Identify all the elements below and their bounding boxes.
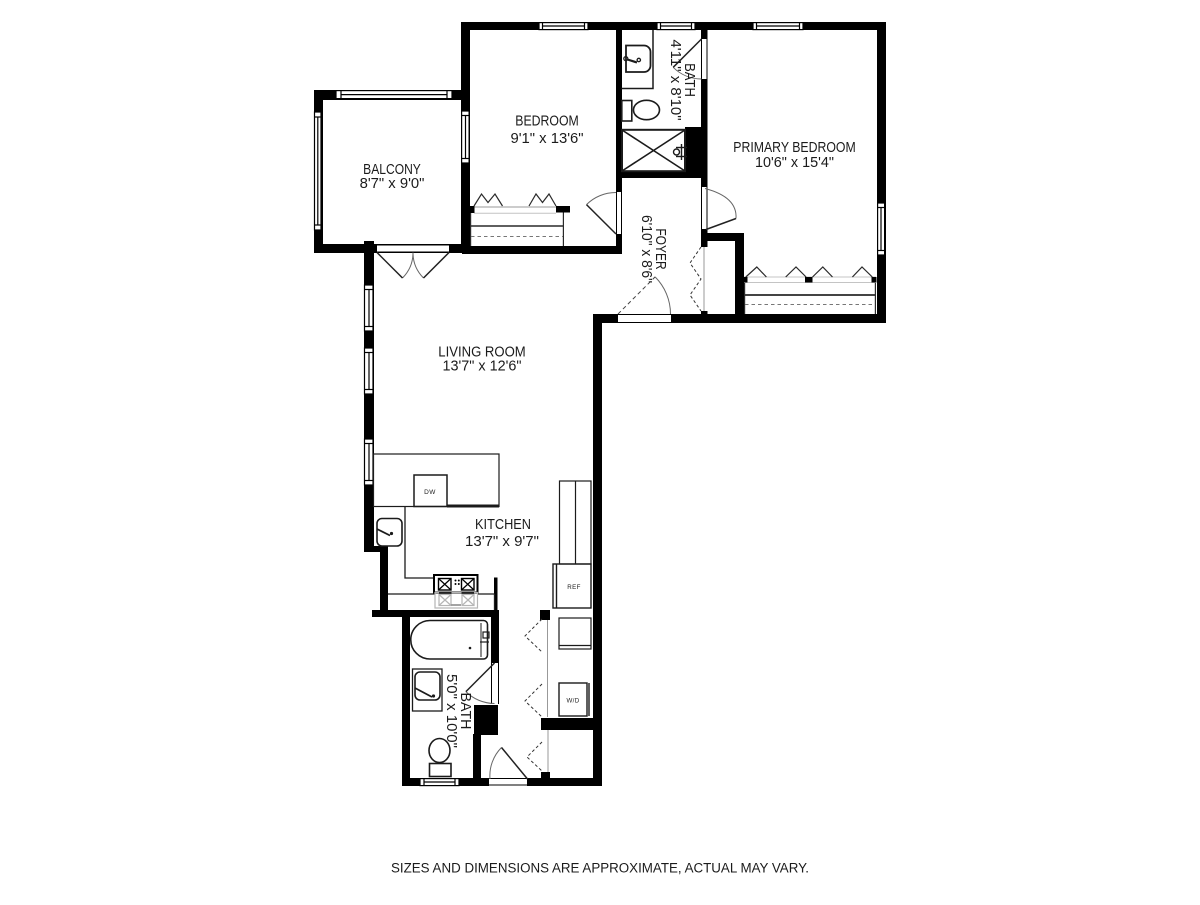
svg-text:REF: REF: [567, 584, 581, 591]
svg-text:13'7" x 9'7": 13'7" x 9'7": [465, 533, 539, 550]
svg-text:PRIMARY BEDROOM: PRIMARY BEDROOM: [733, 139, 855, 155]
svg-text:DW: DW: [424, 489, 436, 496]
svg-text:9'1" x 13'6": 9'1" x 13'6": [510, 130, 583, 147]
svg-text:W/D: W/D: [567, 698, 580, 705]
svg-text:6'10" x 8'6": 6'10" x 8'6": [638, 215, 655, 283]
svg-text:4'11" x 8'10": 4'11" x 8'10": [667, 39, 684, 120]
svg-text:LIVING ROOM: LIVING ROOM: [438, 343, 525, 360]
svg-text:SIZES AND DIMENSIONS ARE APPRO: SIZES AND DIMENSIONS ARE APPROXIMATE, AC…: [391, 860, 809, 875]
svg-text:13'7" x 12'6": 13'7" x 12'6": [443, 358, 522, 374]
svg-text:BEDROOM: BEDROOM: [515, 112, 578, 128]
svg-text:KITCHEN: KITCHEN: [475, 515, 531, 532]
svg-text:5'0" x 10'0": 5'0" x 10'0": [443, 674, 460, 748]
svg-text:10'6" x 15'4": 10'6" x 15'4": [755, 155, 834, 171]
svg-text:8'7" x 9'0": 8'7" x 9'0": [360, 175, 425, 192]
